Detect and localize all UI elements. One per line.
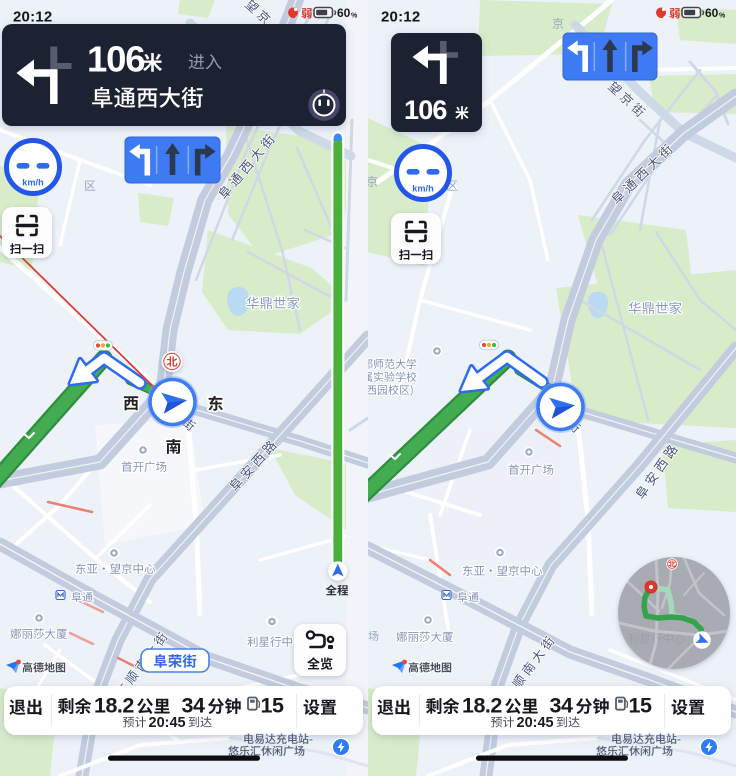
svg-text:106: 106 [87, 39, 144, 80]
svg-text:20:45: 20:45 [517, 715, 554, 731]
svg-text:15: 15 [261, 694, 284, 718]
svg-text:20:12: 20:12 [381, 9, 420, 26]
svg-text:18.2: 18.2 [94, 694, 134, 718]
svg-text:106: 106 [404, 95, 447, 125]
svg-text:km/h: km/h [22, 178, 44, 188]
svg-text:34: 34 [182, 694, 205, 718]
svg-text:60: 60 [337, 6, 351, 20]
svg-text:km/h: km/h [412, 184, 434, 194]
svg-text:20:45: 20:45 [149, 715, 186, 731]
svg-text:18.2: 18.2 [462, 694, 502, 718]
svg-text:20:12: 20:12 [13, 9, 52, 26]
svg-text:%: % [719, 13, 726, 20]
svg-text:60: 60 [705, 6, 719, 20]
svg-text:34: 34 [550, 694, 573, 718]
svg-text:15: 15 [629, 694, 652, 718]
svg-text:%: % [351, 13, 358, 20]
